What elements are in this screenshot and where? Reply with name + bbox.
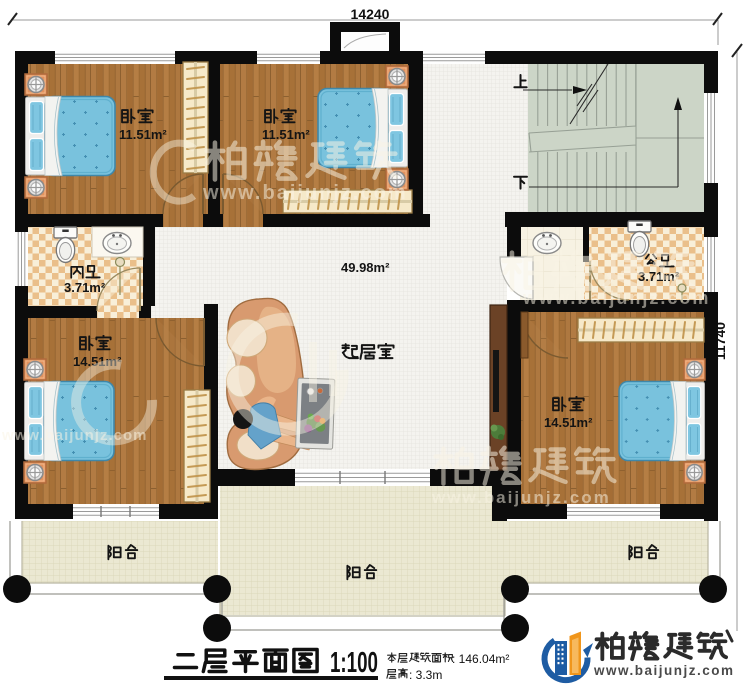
svg-text:www.baijunjz.com: www.baijunjz.com — [431, 488, 611, 507]
svg-text:11.51m²: 11.51m² — [262, 127, 310, 142]
svg-text:www.baijunjz.com: www.baijunjz.com — [1, 427, 147, 444]
svg-text:14240: 14240 — [351, 6, 390, 22]
svg-text:3.71m²: 3.71m² — [64, 280, 106, 295]
svg-text:: 3.3m: : 3.3m — [409, 668, 442, 682]
svg-text:11.51m²: 11.51m² — [119, 127, 167, 142]
svg-text:1:100: 1:100 — [330, 647, 378, 679]
svg-text:www.baijunjz.com: www.baijunjz.com — [522, 288, 710, 308]
svg-text:www.baijunjz.com: www.baijunjz.com — [593, 663, 735, 678]
svg-text:49.98m²: 49.98m² — [341, 260, 390, 275]
svg-text:14.51m²: 14.51m² — [544, 415, 593, 430]
svg-text:: 146.04m²: : 146.04m² — [452, 652, 509, 666]
svg-text:www.baijunjz.com: www.baijunjz.com — [202, 182, 408, 204]
